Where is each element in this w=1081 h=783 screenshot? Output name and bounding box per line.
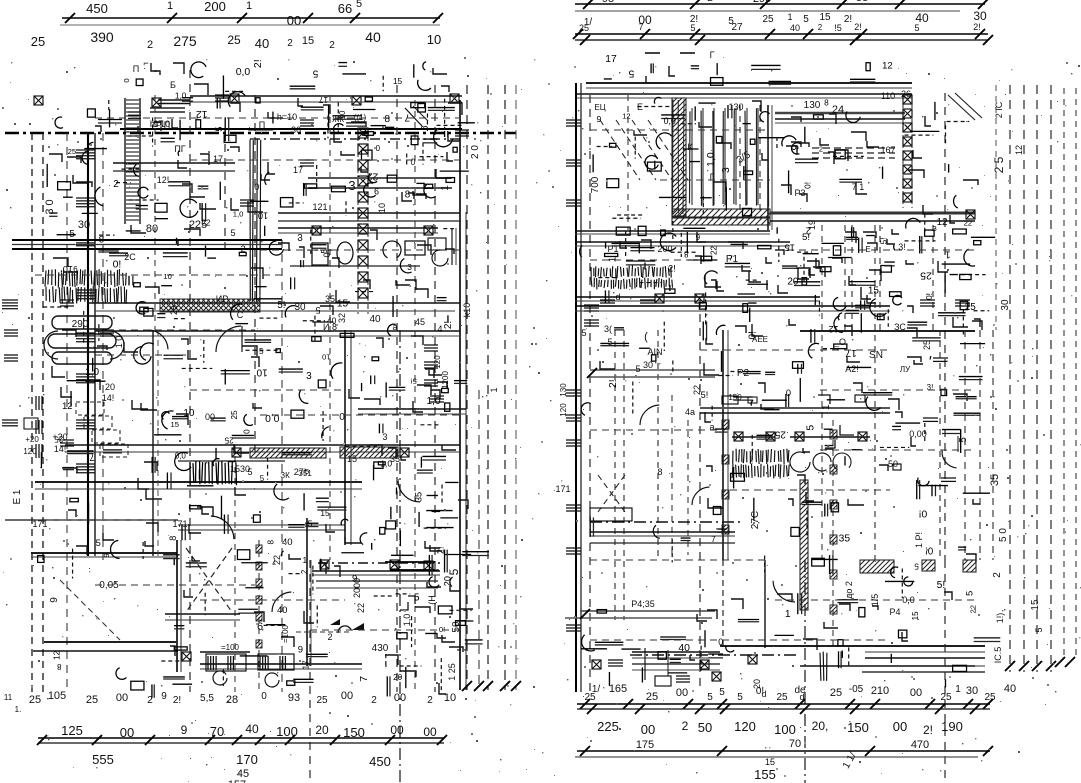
svg-text:9: 9: [49, 597, 60, 603]
svg-text:0!: 0!: [924, 293, 934, 300]
svg-text:0: 0: [718, 636, 723, 646]
svg-text:0!: 0!: [113, 259, 122, 270]
svg-text:25: 25: [776, 692, 788, 703]
svg-text:700: 700: [590, 176, 601, 193]
svg-text:30: 30: [966, 685, 978, 697]
svg-text:50: 50: [451, 621, 462, 633]
svg-text:а: а: [392, 322, 397, 332]
svg-text:С: С: [237, 310, 244, 320]
svg-text:290: 290: [72, 319, 89, 330]
svg-text:8: 8: [267, 539, 276, 544]
svg-text:10: 10: [427, 32, 441, 47]
svg-text:5: 5: [958, 437, 969, 443]
svg-text:9: 9: [374, 186, 379, 196]
svg-text:ИР: ИР: [216, 294, 228, 304]
svg-text:1: 1: [246, 0, 252, 12]
svg-text:5: 5: [581, 328, 586, 338]
svg-text:15: 15: [347, 454, 357, 464]
svg-text:3(: 3(: [604, 324, 612, 334]
svg-text:22: 22: [964, 218, 973, 227]
svg-text:_О: _О: [833, 337, 846, 347]
svg-text:0: 0: [261, 691, 267, 702]
svg-text:5 0: 5 0: [998, 528, 1009, 542]
svg-text:7: 7: [89, 451, 94, 462]
svg-text:25: 25: [830, 687, 842, 699]
svg-text:5: 5: [635, 364, 640, 374]
svg-text:1: 1: [787, 12, 792, 22]
svg-text:2!: 2!: [854, 22, 862, 32]
svg-text:IC.5: IC.5: [993, 647, 1003, 664]
svg-text:2: 2: [300, 570, 309, 574]
svg-text:9: 9: [102, 553, 111, 557]
svg-text:7: 7: [272, 558, 276, 567]
svg-text:470: 470: [911, 739, 929, 751]
svg-text:0: 0: [786, 388, 791, 398]
svg-text:17: 17: [301, 660, 310, 670]
svg-text:12!: 12!: [157, 175, 170, 185]
svg-text:175: 175: [636, 739, 654, 751]
svg-text:5: 5: [628, 67, 634, 78]
svg-text:2: 2: [113, 179, 119, 190]
svg-text:2!: 2!: [923, 723, 933, 737]
svg-text:8: 8: [57, 662, 62, 671]
svg-text:430: 430: [372, 643, 389, 654]
svg-text:1: 1: [302, 555, 307, 565]
svg-text:15: 15: [393, 76, 403, 86]
svg-text:93: 93: [288, 692, 300, 704]
svg-text:25: 25: [762, 14, 774, 25]
svg-text:120: 120: [734, 719, 756, 734]
svg-text:⌐: ⌐: [143, 58, 148, 68]
svg-text:12: 12: [1014, 145, 1024, 155]
svg-text:200: 200: [204, 0, 226, 14]
svg-text:2!: 2!: [973, 22, 981, 32]
svg-text:27C: 27C: [750, 511, 761, 529]
svg-text:30: 30: [973, 9, 987, 23]
svg-text:SN: SN: [869, 350, 883, 361]
svg-text:Р4;35: Р4;35: [631, 599, 655, 609]
svg-text:9: 9: [298, 644, 303, 655]
svg-text:5: 5: [356, 0, 362, 10]
svg-text:28: 28: [226, 694, 238, 706]
svg-text:00: 00: [116, 692, 128, 704]
svg-text:17: 17: [605, 54, 617, 65]
svg-text:171: 171: [555, 484, 570, 494]
svg-text:40: 40: [282, 537, 293, 548]
svg-text:2: 2: [371, 695, 377, 706]
svg-text:1: 1: [489, 387, 499, 392]
svg-text:40: 40: [790, 23, 800, 33]
svg-text:105: 105: [48, 690, 66, 702]
svg-text:0!: 0!: [756, 686, 764, 697]
svg-text:00: 00: [423, 725, 437, 739]
svg-text:00: 00: [910, 687, 922, 699]
svg-text:12: 12: [622, 111, 630, 120]
svg-text:8: 8: [657, 467, 662, 477]
svg-text:40: 40: [369, 314, 381, 325]
svg-text:2: 2: [287, 38, 293, 49]
svg-text:25: 25: [68, 147, 77, 156]
svg-text:5: 5: [803, 14, 809, 25]
svg-text:25: 25: [169, 305, 179, 315]
svg-text:35: 35: [325, 294, 335, 304]
svg-text:5: 5: [806, 425, 817, 431]
svg-text:25: 25: [230, 410, 239, 420]
svg-text:2: 2: [327, 632, 332, 642]
svg-text:5: 5: [247, 467, 252, 477]
svg-text:1: 1: [955, 684, 961, 695]
svg-text:Е: Е: [865, 245, 870, 254]
svg-text:15: 15: [911, 611, 920, 620]
svg-text:0!: 0!: [803, 182, 812, 189]
svg-text:275: 275: [173, 33, 197, 49]
svg-text:00: 00: [390, 723, 404, 737]
svg-text:7: 7: [359, 676, 370, 682]
svg-text:30: 30: [1000, 299, 1011, 311]
svg-text:5: 5: [914, 561, 919, 570]
svg-text:5: 5: [447, 568, 461, 575]
svg-text:1 0: 1 0: [114, 336, 124, 349]
svg-text:12: 12: [51, 650, 61, 660]
svg-text:9: 9: [596, 114, 601, 124]
svg-text:30: 30: [294, 302, 306, 313]
svg-text:130: 130: [728, 102, 743, 112]
svg-text:450: 450: [369, 754, 391, 769]
svg-text:00: 00: [287, 13, 301, 28]
svg-text:1,0: 1,0: [175, 91, 187, 101]
svg-text:30: 30: [78, 219, 90, 231]
svg-text:10: 10: [258, 211, 268, 221]
svg-text:6: 6: [257, 621, 263, 633]
svg-text:17: 17: [319, 95, 329, 105]
svg-text:22: 22: [710, 245, 719, 255]
svg-text:25: 25: [316, 695, 328, 706]
svg-text:2: 2: [682, 719, 689, 733]
svg-text:5: 5: [214, 126, 224, 131]
svg-text:5: 5: [316, 305, 321, 315]
svg-text:32: 32: [337, 313, 347, 323]
svg-text:120: 120: [23, 447, 37, 456]
svg-text:121: 121: [312, 202, 327, 212]
svg-text:5: 5: [96, 538, 101, 548]
svg-text:0: 0: [410, 157, 415, 167]
svg-text:2 5: 2 5: [992, 156, 1006, 173]
svg-text:9: 9: [790, 144, 801, 150]
svg-text:35: 35: [989, 474, 1001, 486]
svg-text:40: 40: [255, 36, 269, 51]
svg-text:5: 5: [914, 23, 919, 33]
svg-text:3: 3: [407, 262, 412, 272]
svg-text:2!: 2!: [608, 379, 619, 388]
svg-text:25: 25: [920, 270, 932, 281]
svg-text:ЗС: ЗС: [894, 322, 906, 332]
svg-text:15: 15: [302, 35, 314, 47]
svg-text:0!: 0!: [254, 182, 262, 192]
svg-text:165: 165: [609, 683, 627, 695]
svg-text:П: П: [164, 120, 170, 130]
svg-text:20: 20: [442, 576, 452, 586]
svg-text:8: 8: [420, 125, 430, 130]
svg-text:0!: 0!: [747, 331, 758, 339]
svg-text:1.: 1.: [15, 705, 22, 714]
svg-text:Р4: Р4: [889, 607, 900, 617]
svg-text:20: 20: [393, 673, 403, 682]
svg-text:00: 00: [641, 722, 655, 737]
svg-text:5: 5: [1034, 627, 1044, 632]
svg-text:1,0: 1,0: [380, 458, 392, 468]
svg-text:5: 5: [307, 519, 312, 529]
svg-text:7: 7: [638, 22, 643, 32]
svg-text:А2!: А2!: [845, 364, 859, 374]
svg-text:+20: +20: [25, 435, 39, 444]
svg-text:15: 15: [819, 12, 831, 23]
svg-text:1: 1: [167, 0, 173, 12]
svg-text:70: 70: [789, 738, 801, 750]
svg-text:2!: 2!: [253, 59, 264, 68]
svg-text:ЛУ: ЛУ: [900, 365, 911, 374]
svg-text:20,: 20,: [812, 719, 829, 733]
svg-text:36: 36: [291, 125, 301, 135]
svg-text:7: 7: [729, 254, 733, 263]
svg-text:9: 9: [352, 574, 357, 585]
svg-text:22: 22: [968, 605, 977, 614]
svg-text:1!): 1!): [995, 613, 1005, 624]
svg-text:!5: !5: [834, 23, 842, 33]
svg-text:390: 390: [90, 29, 114, 45]
svg-text:170: 170: [236, 752, 258, 767]
svg-text:20: 20: [787, 276, 798, 287]
svg-text:0,00: 0,00: [909, 429, 927, 439]
svg-text:1,0: 1,0: [706, 152, 717, 167]
svg-text:150: 150: [847, 720, 869, 735]
svg-text:1 Р!: 1 Р!: [914, 532, 924, 548]
svg-text:25: 25: [646, 691, 658, 703]
svg-text:0!: 0!: [919, 507, 928, 518]
svg-text:2!: 2!: [443, 321, 454, 329]
svg-text:1,0: 1,0: [426, 396, 441, 407]
svg-text:5,5: 5,5: [200, 693, 214, 704]
svg-text:10: 10: [256, 367, 268, 378]
svg-text:(: (: [644, 331, 648, 343]
svg-text:20: 20: [105, 382, 115, 392]
svg-text:100: 100: [774, 722, 796, 737]
svg-text:-05: -05: [849, 684, 864, 695]
svg-text:4: 4: [437, 324, 442, 334]
svg-text:0: 0: [339, 412, 345, 423]
svg-text:15: 15: [153, 119, 163, 129]
svg-text:3: 3: [382, 432, 387, 442]
svg-text:5: 5: [719, 687, 725, 698]
svg-text:ПГ: ПГ: [174, 144, 185, 154]
svg-text:120: 120: [433, 355, 442, 369]
svg-text:Г: Г: [710, 50, 715, 60]
svg-text:2: 2: [818, 23, 823, 32]
svg-text:3!: 3!: [927, 383, 934, 392]
svg-text:1 25: 1 25: [447, 663, 457, 681]
svg-text:00: 00: [893, 719, 907, 734]
svg-text:35: 35: [413, 492, 423, 502]
svg-text:10: 10: [377, 203, 387, 213]
svg-text:25: 25: [29, 694, 41, 706]
svg-text:11: 11: [4, 693, 13, 702]
svg-text:3 0: 3 0: [44, 199, 56, 214]
svg-text:5: 5: [260, 474, 265, 483]
svg-text:17: 17: [845, 347, 857, 358]
svg-text:25: 25: [86, 694, 98, 706]
svg-text:2: 2: [992, 572, 1003, 578]
svg-text:25: 25: [227, 33, 241, 47]
svg-text:2!: 2!: [173, 695, 181, 706]
svg-text:15: 15: [171, 420, 179, 429]
svg-text:8: 8: [385, 114, 391, 125]
svg-text:35: 35: [839, 534, 851, 545]
svg-text:26: 26: [901, 89, 911, 99]
svg-text:7 1: 7 1: [852, 182, 865, 192]
svg-text:25: 25: [774, 428, 786, 439]
svg-text:40: 40: [1004, 683, 1016, 695]
svg-text:8: 8: [684, 249, 689, 258]
svg-text:450: 450: [86, 1, 108, 16]
svg-text:10: 10: [444, 692, 456, 704]
svg-text:5: 5: [230, 228, 235, 238]
svg-text:17: 17: [213, 154, 223, 164]
svg-text:22: 22: [356, 603, 366, 613]
svg-text:157: 157: [228, 779, 246, 783]
svg-text:ЗК: ЗК: [280, 471, 290, 480]
svg-text:167: 167: [880, 145, 895, 155]
svg-text:до 2: до 2: [844, 581, 854, 599]
svg-text:4а: 4а: [685, 407, 695, 417]
svg-text:2!: 2!: [436, 546, 446, 554]
svg-text:12: 12: [882, 61, 893, 72]
svg-text:Б: Б: [170, 80, 176, 90]
svg-text:5: 5: [319, 248, 329, 253]
svg-text:155: 155: [754, 767, 776, 782]
svg-text:2 IC: 2 IC: [994, 101, 1004, 118]
svg-text:3: 3: [306, 371, 312, 382]
svg-text:П: П: [133, 64, 139, 74]
svg-text:190: 190: [941, 719, 963, 734]
svg-text:25: 25: [54, 434, 63, 443]
svg-text:14!: 14!: [102, 393, 115, 403]
svg-text:25: 25: [31, 34, 45, 49]
svg-text:0,0: 0,0: [265, 412, 280, 423]
svg-text:=100: =100: [281, 624, 290, 643]
svg-text:125: 125: [61, 723, 83, 738]
svg-text:5!: 5!: [937, 580, 946, 591]
svg-text:555: 555: [92, 752, 114, 767]
svg-text:1: 1: [785, 609, 791, 620]
svg-text:h=10: h=10: [277, 112, 297, 122]
svg-text:2: 2: [329, 40, 335, 51]
svg-text:3: 3: [721, 167, 732, 173]
svg-text:2!: 2!: [668, 264, 676, 274]
svg-text:27: 27: [731, 22, 743, 33]
svg-text:3: 3: [348, 178, 355, 193]
svg-text:0,0: 0,0: [236, 67, 251, 78]
svg-text:110: 110: [881, 91, 895, 101]
svg-text:0: 0: [122, 78, 131, 82]
svg-text:15: 15: [784, 242, 795, 253]
svg-text:25: 25: [940, 692, 952, 703]
svg-text:0!: 0!: [439, 625, 445, 634]
svg-text:7: 7: [711, 535, 716, 544]
svg-text:15: 15: [337, 299, 349, 310]
svg-text:10: 10: [322, 352, 330, 361]
svg-text:8: 8: [168, 536, 178, 541]
svg-text:0: 0: [243, 429, 252, 434]
svg-text:ЕЦ: ЕЦ: [594, 103, 605, 112]
svg-text:1200: 1200: [441, 371, 450, 389]
svg-text:10: 10: [163, 272, 171, 281]
svg-text:1,0: 1,0: [402, 614, 412, 627]
svg-text:25: 25: [965, 302, 976, 313]
svg-text:50: 50: [888, 459, 898, 469]
svg-text:5!: 5!: [802, 232, 810, 243]
svg-text:2: 2: [147, 695, 153, 706]
svg-text:9: 9: [161, 691, 167, 702]
svg-text:40: 40: [327, 316, 337, 326]
svg-text:40: 40: [365, 29, 381, 45]
svg-text:40: 40: [277, 605, 287, 615]
svg-text:9: 9: [181, 723, 188, 737]
svg-text:5: 5: [690, 23, 695, 33]
svg-text:5: 5: [737, 692, 743, 703]
svg-text:15: 15: [868, 285, 880, 296]
svg-text:40: 40: [245, 722, 259, 736]
svg-text:5: 5: [414, 592, 420, 603]
svg-text:1: 1: [440, 185, 451, 191]
svg-text:130: 130: [804, 100, 821, 111]
svg-text:50: 50: [698, 720, 712, 735]
svg-text:1: 1: [821, 404, 832, 410]
svg-text:00: 00: [394, 692, 406, 704]
svg-text:40: 40: [678, 643, 690, 654]
svg-text:8: 8: [824, 98, 829, 107]
svg-text:2 0: 2 0: [470, 145, 481, 159]
svg-text:E 1: E 1: [12, 489, 23, 504]
svg-text:5: 5: [964, 591, 974, 596]
svg-text:00: 00: [341, 690, 353, 702]
svg-text:П: П: [259, 120, 265, 130]
svg-text:12: 12: [937, 217, 948, 228]
svg-text:5!: 5!: [701, 390, 709, 400]
svg-text:7: 7: [404, 111, 410, 122]
svg-text:8: 8: [405, 190, 411, 201]
svg-text:45: 45: [415, 317, 425, 327]
svg-text:1/: 1/: [592, 684, 601, 695]
svg-text:5: 5: [305, 467, 309, 476]
svg-text:(H: (H: [427, 595, 437, 605]
svg-text:2: 2: [147, 39, 153, 51]
svg-text:5: 5: [312, 68, 318, 79]
svg-text:00: 00: [676, 687, 688, 699]
svg-text:5: 5: [707, 692, 713, 703]
svg-text:20: 20: [315, 723, 329, 737]
svg-text:66: 66: [338, 1, 352, 16]
svg-text:2: 2: [819, 145, 823, 154]
svg-text:2!: 2!: [844, 14, 852, 25]
svg-text:9: 9: [696, 233, 701, 242]
svg-text:25: 25: [224, 435, 234, 444]
svg-text:=100: =100: [221, 643, 240, 652]
svg-text:22: 22: [202, 218, 211, 227]
svg-text:15: 15: [1030, 599, 1041, 611]
svg-text:0,0: 0,0: [664, 116, 676, 126]
svg-text:210: 210: [871, 685, 889, 697]
svg-text:80: 80: [146, 223, 158, 235]
svg-text:2: 2: [427, 695, 433, 706]
